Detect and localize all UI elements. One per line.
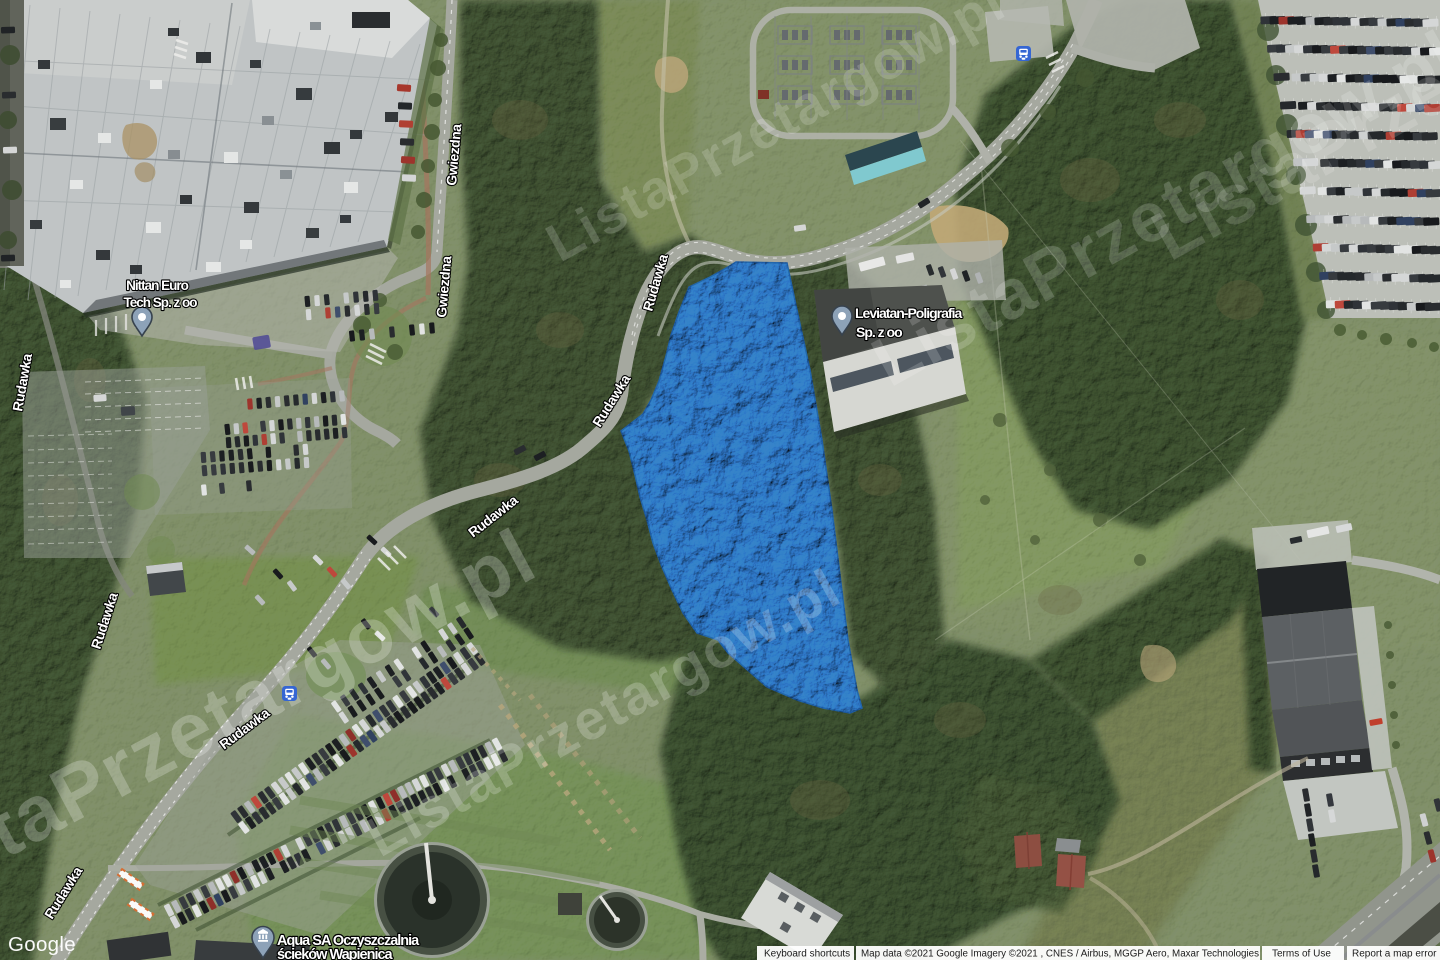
svg-text:ścieków Wapienica: ścieków Wapienica [277, 947, 394, 960]
svg-text:Terms of Use: Terms of Use [1272, 949, 1331, 960]
svg-text:Keyboard shortcuts: Keyboard shortcuts [764, 949, 850, 960]
svg-text:Report a map error: Report a map error [1352, 949, 1437, 960]
svg-text:Google: Google [8, 933, 76, 956]
svg-text:Nittan Euro: Nittan Euro [126, 278, 189, 293]
svg-text:Leviatan-Poligrafia: Leviatan-Poligrafia [855, 305, 962, 321]
svg-text:Tech Sp. z oo: Tech Sp. z oo [123, 295, 197, 310]
svg-text:Map data ©2021 Google Imagery: Map data ©2021 Google Imagery ©2021 , CN… [861, 949, 1259, 960]
svg-text:Sp. z oo: Sp. z oo [856, 324, 902, 340]
